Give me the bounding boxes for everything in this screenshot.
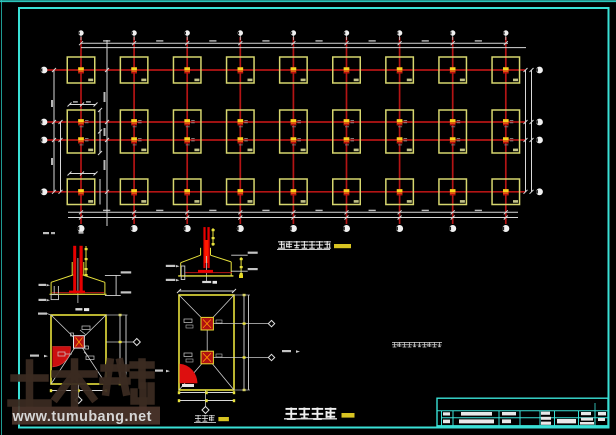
svg-text:www.tumubang.net: www.tumubang.net	[12, 409, 152, 425]
